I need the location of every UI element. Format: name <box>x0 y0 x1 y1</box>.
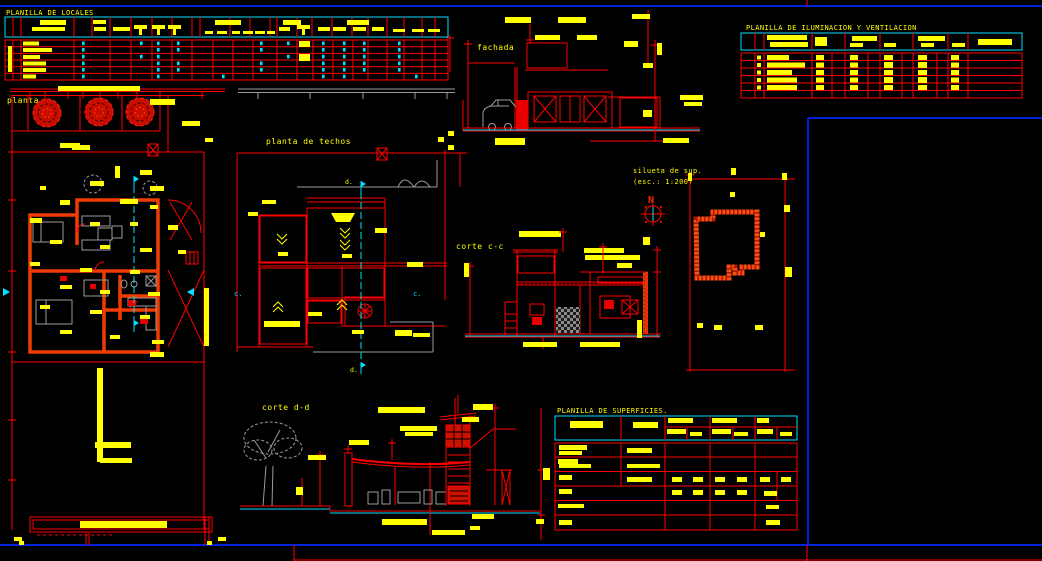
fachada-label: fachada <box>477 43 514 52</box>
tree-gray-icon <box>244 422 302 506</box>
cad-linework: PLANILLA DE LOCALES <box>0 0 1042 561</box>
section-d-flag-icon <box>134 176 139 188</box>
corte-dd-label: corte d-d <box>262 403 310 412</box>
section-wall <box>643 272 648 334</box>
table-iluminacion-title: PLANILLA DE ILUMINACION Y VENTILACION <box>746 24 917 32</box>
table-iluminacion: PLANILLA DE ILUMINACION Y VENTILACION <box>741 24 1022 98</box>
table-locales-header-labels <box>32 20 440 35</box>
upper-window-grid <box>446 425 470 447</box>
louver-window <box>518 256 554 273</box>
drain-box-icon <box>377 148 387 160</box>
section-d-flag-icon <box>361 362 366 374</box>
section-furniture <box>368 490 446 504</box>
corte-cc-label: corte c-c <box>456 242 504 251</box>
roof-panel <box>260 268 306 344</box>
section-c-label: c. <box>413 290 421 298</box>
roof-slope-arrow-icon <box>340 240 350 250</box>
techos-label: planta de techos <box>266 137 351 146</box>
north-arrow-icon: N <box>641 195 665 226</box>
section-d-flag-icon <box>134 320 139 332</box>
cad-sheet-viewport[interactable]: PLANILLA DE LOCALES <box>0 0 1042 561</box>
silueta-dimension-labels <box>688 168 792 330</box>
floor-tiles <box>556 307 580 333</box>
section-d-label: d. <box>345 178 353 186</box>
table-iluminacion-header-labels <box>767 35 1012 47</box>
roof-slope-arrow-icon <box>340 228 350 238</box>
drawing-fachada: fachada <box>446 10 703 145</box>
drawing-corte-cc: corte c-c <box>456 228 661 349</box>
table-locales: PLANILLA DE LOCALES <box>5 9 448 80</box>
roof-slope-arrow-icon <box>277 234 287 244</box>
section-wall <box>345 453 352 506</box>
section-c-marker-icon <box>3 288 10 296</box>
chimney-icon <box>331 213 355 222</box>
drawing-corte-dd: corte d-d <box>240 395 550 540</box>
drawing-planta: planta <box>3 86 226 545</box>
tree-icon <box>85 98 113 126</box>
tree-icon <box>33 99 61 127</box>
roof-panel <box>308 268 384 298</box>
table-superficies-title: PLANILLA DE SUPERFICIES. <box>557 407 668 415</box>
drawing-techos: planta de techos d. d. c. c. <box>234 89 467 374</box>
fachada-upper-wall <box>527 43 567 68</box>
silueta-label-line2: (esc.: 1:200) <box>633 178 693 186</box>
drain-box-icon <box>148 144 158 156</box>
section-c-marker-icon <box>187 288 194 296</box>
section-d-label: d. <box>350 366 358 374</box>
section-c-label: c. <box>234 290 242 298</box>
table-superficies: PLANILLA DE SUPERFICIES. <box>555 407 797 530</box>
railing <box>486 470 512 505</box>
techos-dimension-labels <box>248 131 454 337</box>
tree-icon <box>126 98 154 126</box>
table-locales-title: PLANILLA DE LOCALES <box>6 9 94 17</box>
roof-slope-arrow-icon <box>273 302 283 312</box>
